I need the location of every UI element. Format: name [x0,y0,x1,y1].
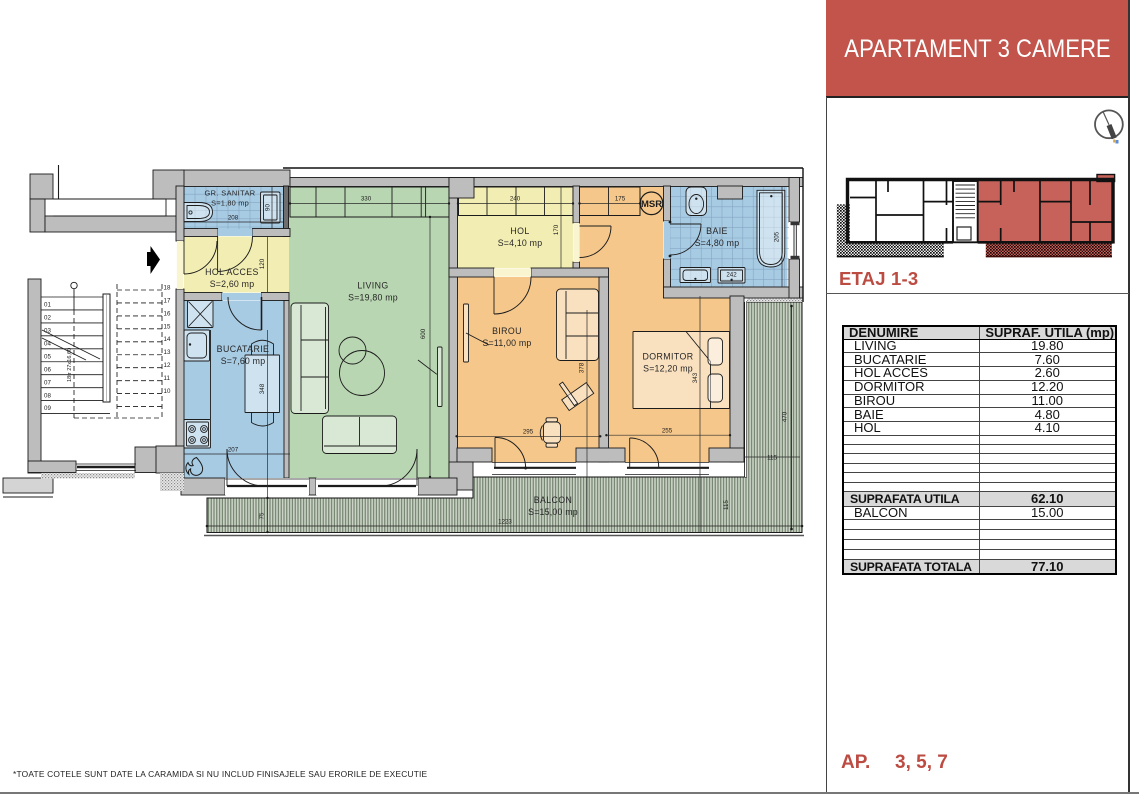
svg-text:205: 205 [774,231,781,242]
svg-text:348: 348 [259,383,266,394]
svg-text:09: 09 [44,405,51,412]
svg-text:01: 01 [44,302,51,309]
svg-text:GR. SANITAR: GR. SANITAR [204,189,255,198]
svg-text:LIVING: LIVING [357,281,388,291]
svg-text:MSR: MSR [641,199,662,210]
svg-text:10: 10 [164,388,171,395]
svg-text:08: 08 [44,392,51,399]
svg-text:343: 343 [692,372,699,383]
svg-text:S=12,20 mp: S=12,20 mp [643,364,693,374]
svg-text:16: 16 [164,310,171,317]
svg-text:BALCON: BALCON [534,495,573,505]
svg-text:S=19,80 mp: S=19,80 mp [348,293,398,303]
svg-text:75: 75 [259,512,266,519]
svg-text:02: 02 [44,315,51,322]
svg-text:03: 03 [44,328,51,335]
svg-text:120: 120 [259,258,266,269]
svg-text:600: 600 [420,328,427,339]
svg-text:255: 255 [662,428,673,435]
svg-text:07: 07 [44,379,51,386]
svg-text:17: 17 [164,297,171,304]
svg-text:S=7,60 mp: S=7,60 mp [221,356,266,366]
svg-text:295: 295 [523,429,534,436]
svg-text:170: 170 [553,224,560,235]
svg-text:242: 242 [726,272,737,279]
svg-text:115: 115 [723,500,730,510]
svg-text:207: 207 [228,447,239,454]
svg-text:HOL ACCES: HOL ACCES [205,267,259,277]
svg-text:S=15,00 mp: S=15,00 mp [528,507,578,517]
svg-text:15: 15 [164,323,171,330]
svg-text:04: 04 [44,340,51,347]
svg-text:14: 14 [164,336,171,343]
svg-text:330: 330 [361,196,372,203]
svg-text:12: 12 [164,362,171,369]
svg-text:18tr 27x16,60: 18tr 27x16,60 [67,348,73,382]
svg-text:05: 05 [44,353,51,360]
svg-text:DORMITOR: DORMITOR [643,352,694,362]
svg-text:208: 208 [228,215,239,222]
svg-text:240: 240 [510,196,521,203]
svg-text:06: 06 [44,366,51,373]
svg-text:S=11,00 mp: S=11,00 mp [482,338,531,348]
svg-text:470: 470 [782,411,789,422]
svg-text:HOL: HOL [510,226,529,236]
svg-text:BUCATARIE: BUCATARIE [217,344,270,354]
svg-text:115: 115 [767,455,777,462]
svg-text:18: 18 [164,284,171,291]
svg-text:S=4,80 mp: S=4,80 mp [695,238,740,248]
svg-text:13: 13 [164,349,171,356]
svg-text:378: 378 [579,362,586,373]
svg-text:BAIE: BAIE [706,226,728,236]
svg-text:S=4,10 mp: S=4,10 mp [498,238,543,248]
svg-text:1223: 1223 [498,519,512,526]
svg-text:BIROU: BIROU [492,326,522,336]
svg-text:11: 11 [164,375,171,382]
svg-text:S=2,60 mp: S=2,60 mp [210,279,255,289]
svg-text:90: 90 [265,204,272,211]
svg-text:175: 175 [615,196,626,203]
svg-text:S=1,80 mp: S=1,80 mp [211,199,249,208]
